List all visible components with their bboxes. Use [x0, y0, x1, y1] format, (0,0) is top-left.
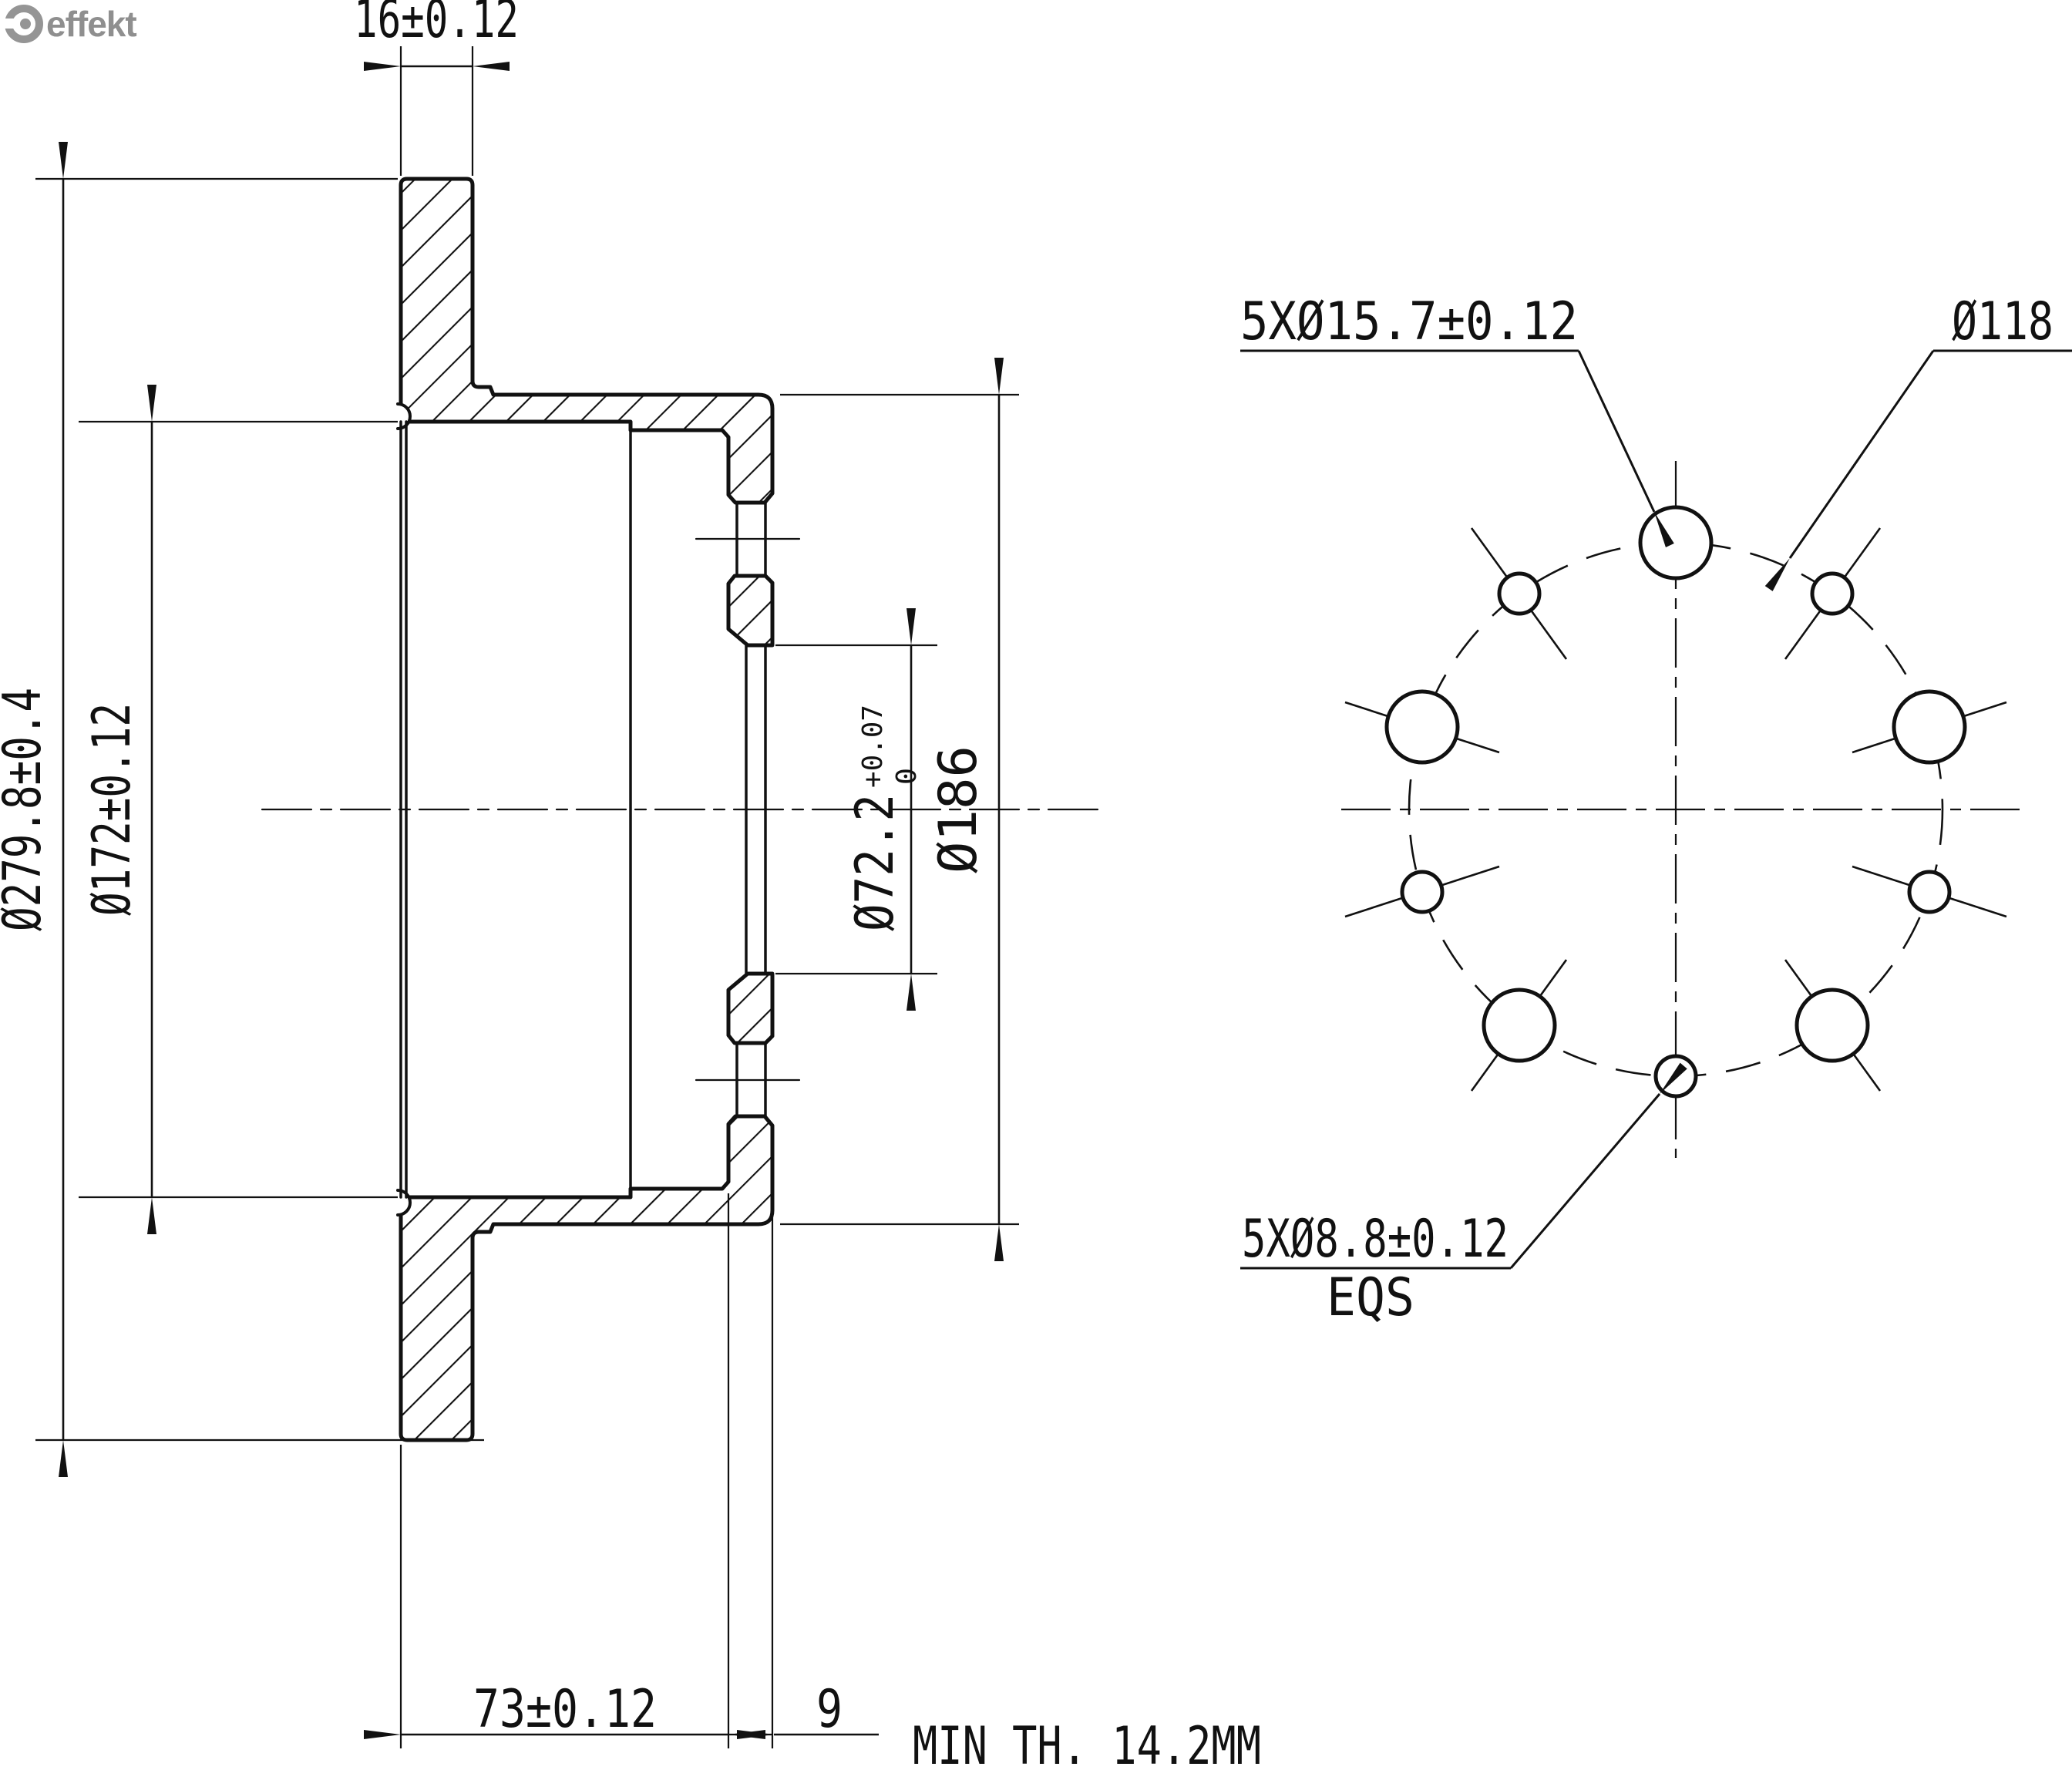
label-large-holes: 5XØ15.7±0.12 [1240, 291, 1578, 352]
bolt-pattern-view: 5XØ15.7±0.12 Ø118 5XØ8.8±0.12 EQS [1240, 291, 2072, 1328]
dim-text-thickness: 16±0.12 [354, 0, 519, 50]
brake-disc-drawing: effekt [0, 0, 2072, 1770]
label-bolt-circle: Ø118 [1952, 291, 2053, 352]
dim-text-bore-tol-plus: +0.07 [857, 705, 889, 788]
flange-segment-upper [728, 576, 772, 645]
logo: effekt [0, 4, 136, 44]
dim-text-hat-depth: 73±0.12 [473, 1679, 657, 1740]
section-cut-lower [401, 1116, 772, 1440]
label-equally-spaced: EQS [1327, 1267, 1414, 1328]
dim-text-friction-diameter: Ø172±0.12 [82, 703, 143, 916]
drawing-sheet: effekt [0, 0, 2072, 1770]
label-small-holes: 5XØ8.8±0.12 [1242, 1209, 1509, 1270]
section-cut-upper [401, 179, 772, 503]
brand-text: effekt [46, 4, 136, 44]
min-thickness-note: MIN TH. 14.2MM [913, 1716, 1261, 1770]
wrench-circle-icon [0, 8, 39, 39]
dim-text-flange-thickness: 9 [816, 1679, 843, 1740]
dim-text-bore-tol-zero: 0 [891, 768, 923, 785]
leader-large-holes [1240, 351, 1654, 512]
dim-text-bore-value: Ø72.2 [845, 794, 906, 931]
leader-bolt-circle [1790, 351, 2072, 558]
dimension-thickness-16 [401, 46, 473, 176]
flange-segment-lower [728, 974, 772, 1043]
dim-text-outer-diameter: Ø279.8±0.4 [0, 688, 53, 931]
dim-text-hat-diameter: Ø186 [928, 745, 989, 873]
